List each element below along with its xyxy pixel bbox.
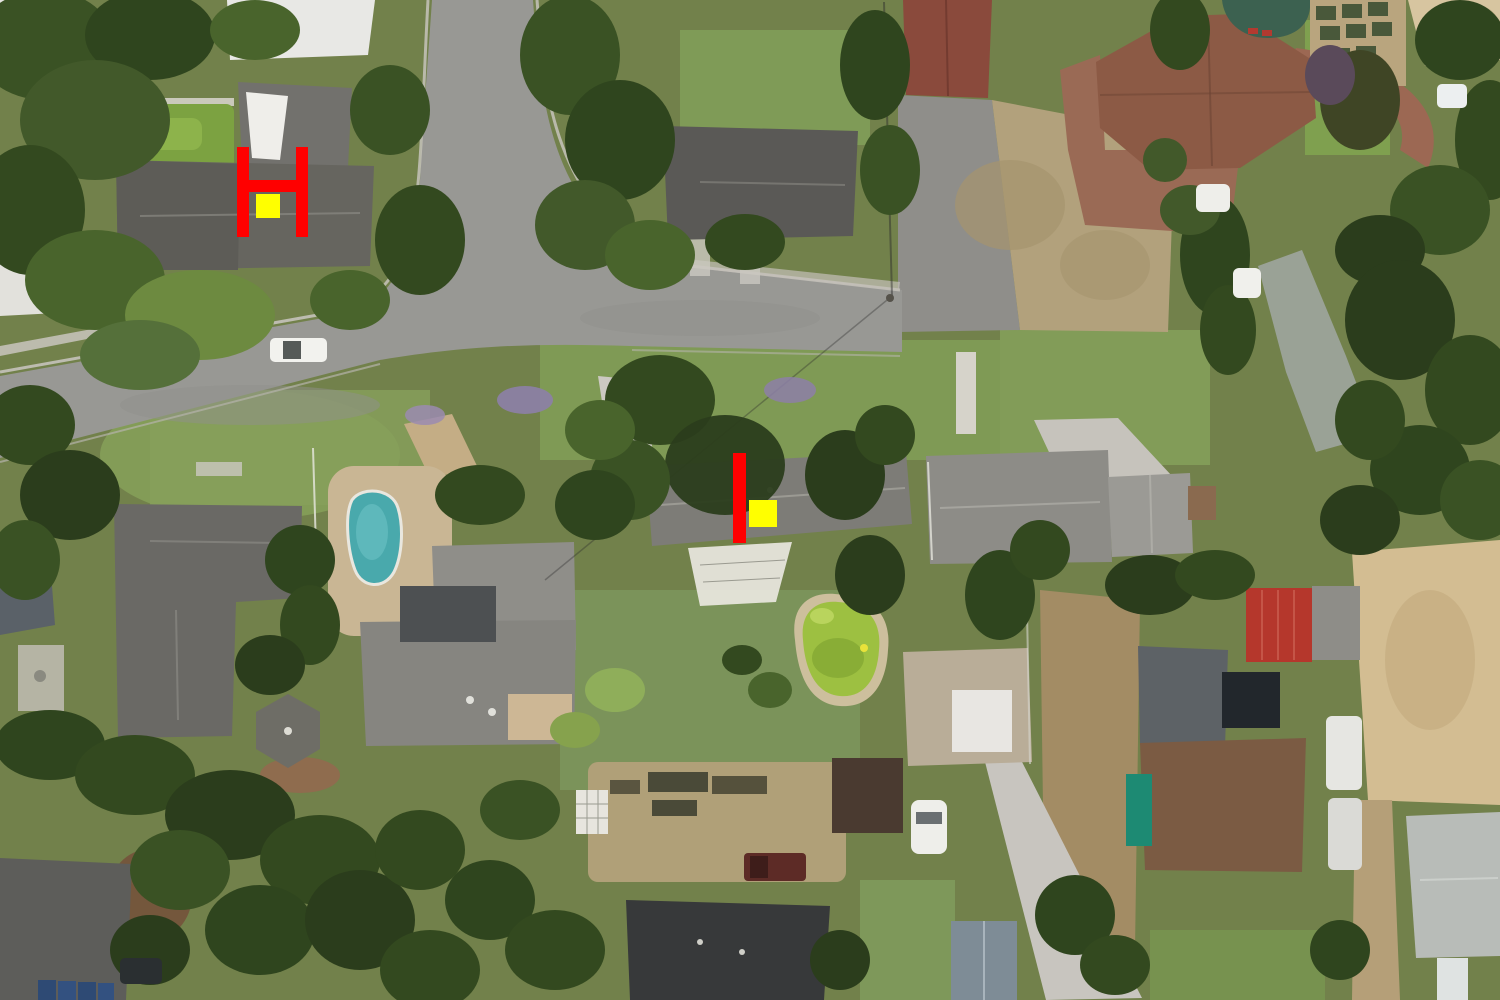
vehicles-shape <box>916 812 942 824</box>
vegetation-shape <box>555 470 635 540</box>
vegetation-shape <box>605 220 695 290</box>
vegetation-shape <box>748 672 792 708</box>
vehicles-shape <box>283 341 301 359</box>
garden-bed <box>610 780 640 794</box>
garden-bed <box>648 772 708 792</box>
concrete-path <box>956 352 976 434</box>
buildings-shape <box>1372 22 1392 36</box>
buildings-shape <box>98 983 114 1000</box>
buildings-shape <box>1437 958 1468 1000</box>
dark-roof-panels <box>400 586 496 642</box>
roads-shape <box>580 300 820 336</box>
vegetation-shape <box>705 214 785 270</box>
vegetation-shape <box>1080 935 1150 995</box>
h-marker-right-bar[interactable] <box>296 147 308 237</box>
vegetation-shape <box>505 910 605 990</box>
buildings-shape <box>488 708 496 716</box>
vegetation-shape <box>235 635 305 695</box>
brown-roof-house <box>1140 738 1306 872</box>
vegetation-shape <box>585 668 645 712</box>
white-rv-1 <box>1326 716 1362 790</box>
buildings-shape <box>860 644 868 652</box>
bottom-left-house <box>0 858 132 1000</box>
buildings-shape <box>1368 2 1388 16</box>
buildings-shape <box>58 981 76 1000</box>
garden-bed <box>712 776 767 794</box>
buildings-shape <box>697 939 703 945</box>
vegetation-shape <box>835 535 905 615</box>
slate-roof-section <box>1138 646 1228 748</box>
ground-shape <box>955 160 1065 250</box>
solar-array <box>1222 672 1280 728</box>
teal-tarp <box>1126 774 1152 846</box>
vegetation-shape <box>1320 485 1400 555</box>
buildings-shape <box>1188 486 1216 520</box>
vegetation-shape <box>1335 380 1405 460</box>
vegetation-shape <box>80 320 200 390</box>
vegetation-shape <box>1305 45 1355 105</box>
vegetation-shape <box>435 465 525 525</box>
vegetation-shape <box>810 930 870 990</box>
yellow-target-2[interactable] <box>749 500 777 527</box>
buildings-shape <box>466 696 474 704</box>
dark-car <box>120 958 162 984</box>
vegetation-shape <box>480 780 560 840</box>
purple-shrub <box>764 377 816 403</box>
red-bar-marker[interactable] <box>733 453 746 543</box>
white-lattice <box>576 790 608 834</box>
buildings-shape <box>1312 586 1360 660</box>
ground-shape <box>1060 230 1150 300</box>
white-suv <box>911 800 947 854</box>
hardscape-shape <box>34 670 46 682</box>
buildings-shape <box>1346 24 1366 38</box>
white-trellis <box>688 542 792 606</box>
bottom-right-house <box>1406 812 1500 958</box>
palm-tree <box>1143 138 1187 182</box>
vehicles-shape <box>750 856 768 878</box>
white-car-topright <box>1437 84 1467 108</box>
buildings-shape <box>1320 26 1340 40</box>
vegetation-shape <box>1310 920 1370 980</box>
white-car-driveway <box>1196 184 1230 212</box>
buildings-shape <box>1248 28 1258 34</box>
yellow-target-1[interactable] <box>256 194 280 218</box>
vegetation-shape <box>130 830 230 910</box>
purple-shrub <box>497 386 553 414</box>
vegetation-shape <box>350 65 430 155</box>
h-marker-crossbar[interactable] <box>249 180 296 192</box>
buildings-shape <box>284 727 292 735</box>
vegetation-shape <box>1010 520 1070 580</box>
buildings-shape <box>952 690 1012 752</box>
buildings-shape <box>78 982 96 1000</box>
vegetation-shape <box>840 10 910 120</box>
buildings-shape <box>1262 30 1272 36</box>
garden-bed <box>652 800 697 816</box>
vegetation-shape <box>1200 285 1256 375</box>
buildings-shape <box>356 504 388 560</box>
brown-shed <box>832 758 903 833</box>
ground-shape <box>1385 590 1475 730</box>
h-marker-left-bar[interactable] <box>237 147 249 237</box>
roads-shape <box>120 385 380 425</box>
aerial-map <box>0 0 1500 1000</box>
vegetation-shape <box>550 712 600 748</box>
buildings-shape <box>739 949 745 955</box>
vegetation-shape <box>210 0 300 60</box>
vegetation-shape <box>855 405 915 465</box>
vegetation-shape <box>265 525 335 595</box>
red-metal-roof <box>1246 588 1312 662</box>
roads-shape <box>196 462 242 476</box>
buildings-shape <box>812 638 864 678</box>
vegetation-shape <box>375 185 465 295</box>
ground-shape <box>1150 930 1325 1000</box>
white-car-right <box>1233 268 1261 298</box>
vegetation-shape <box>310 270 390 330</box>
vegetation-shape <box>205 885 315 975</box>
vegetation-shape <box>565 400 635 460</box>
utility-pole <box>886 294 894 302</box>
white-rv-2 <box>1328 798 1362 870</box>
aerial-scene <box>0 0 1500 1000</box>
buildings-shape <box>1342 4 1362 18</box>
buildings-shape <box>1316 6 1336 20</box>
solar-panels <box>38 980 56 1000</box>
buildings-shape <box>810 608 834 624</box>
purple-shrub <box>405 405 445 425</box>
vegetation-shape <box>1175 550 1255 600</box>
vegetation-shape <box>722 645 762 675</box>
bottom-dark-house <box>626 900 830 1000</box>
vegetation-shape <box>375 810 465 890</box>
vegetation-shape <box>860 125 920 215</box>
ground-shape <box>860 880 955 1000</box>
